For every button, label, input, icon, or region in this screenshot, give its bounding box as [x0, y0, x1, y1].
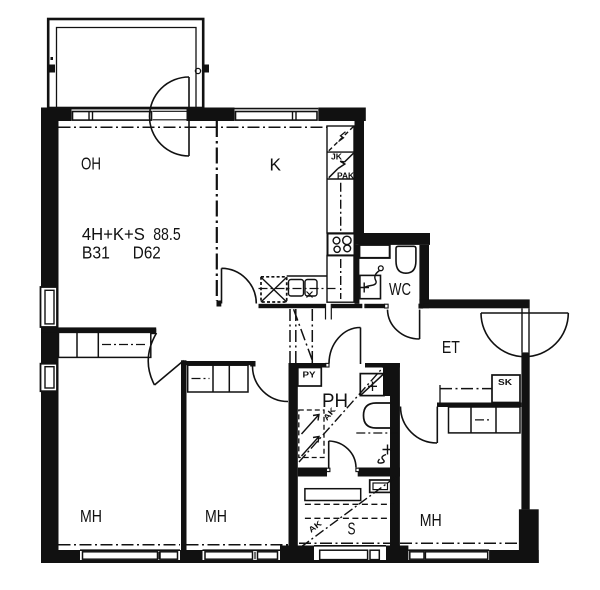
svg-text:SK: SK	[498, 378, 512, 387]
svg-text:K: K	[270, 155, 282, 175]
svg-text:MH: MH	[80, 506, 102, 526]
svg-text:88.5: 88.5	[153, 224, 181, 244]
svg-text:ET: ET	[442, 337, 460, 357]
svg-text:WC: WC	[389, 279, 411, 299]
svg-text:S: S	[348, 519, 356, 539]
svg-text:JK: JK	[331, 153, 342, 162]
svg-text:PY: PY	[303, 371, 317, 380]
svg-text:PH: PH	[322, 391, 348, 412]
svg-text:MH: MH	[205, 506, 227, 526]
svg-text:B31: B31	[82, 243, 110, 263]
svg-text:MH: MH	[420, 510, 442, 530]
svg-text:OH: OH	[81, 154, 101, 174]
svg-text:PAK: PAK	[337, 172, 354, 181]
svg-text:D62: D62	[133, 243, 161, 263]
svg-text:4H+K+S: 4H+K+S	[82, 224, 145, 244]
